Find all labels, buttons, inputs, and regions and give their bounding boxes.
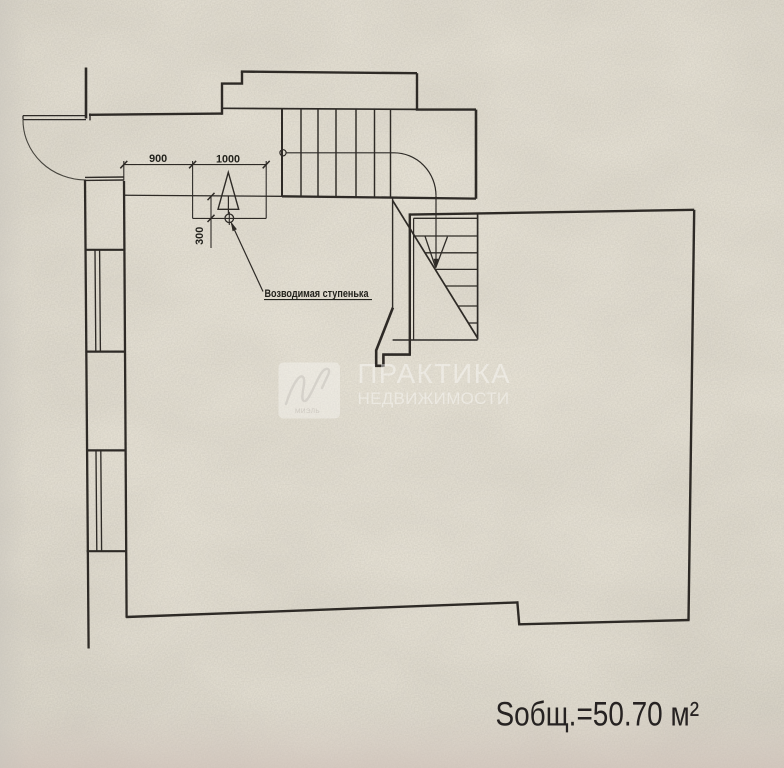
svg-text:1000: 1000 [216, 154, 240, 166]
svg-text:900: 900 [149, 153, 167, 165]
svg-text:МИЭЛЬ: МИЭЛЬ [295, 408, 320, 415]
svg-text:ПРАКТИКА: ПРАКТИКА [358, 358, 512, 389]
svg-text:Sобщ.=50.70 м²: Sобщ.=50.70 м² [496, 696, 700, 734]
svg-text:НЕДВИЖИМОСТИ: НЕДВИЖИМОСТИ [358, 389, 510, 408]
svg-text:Возводимая ступенька: Возводимая ступенька [265, 288, 370, 300]
svg-text:300: 300 [194, 227, 206, 245]
